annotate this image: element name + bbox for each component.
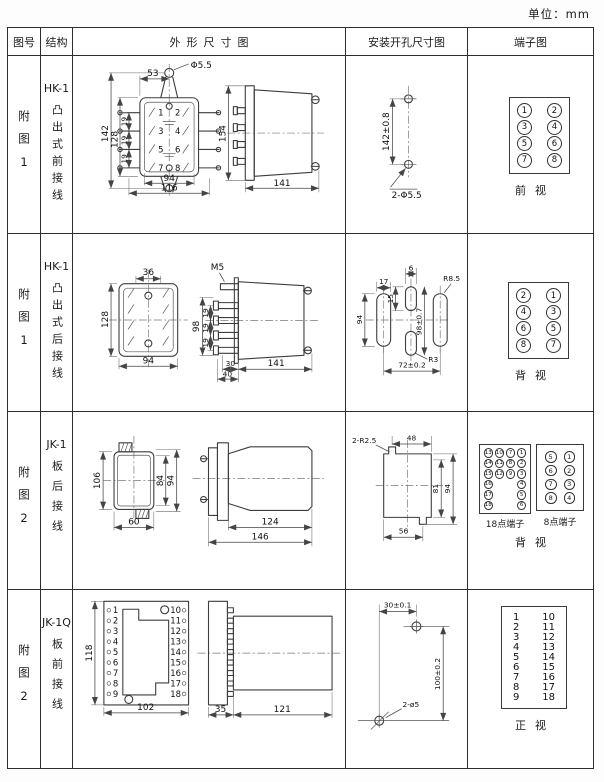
terminal-pin: 10	[495, 448, 505, 458]
terminal-pin: 11	[495, 459, 505, 469]
terminal-pin: 5	[545, 451, 557, 463]
dim-label: 94	[143, 356, 155, 366]
dim-label: R3	[428, 355, 438, 364]
terminal-right-column: 2468	[547, 103, 562, 168]
spec-table: 图号 结构 外形尺寸图 安装开孔尺寸图 端子图 附图1 HK-1 凸出式前接线	[7, 27, 594, 769]
dim-label: 19	[119, 117, 128, 127]
terminal-pin: 3	[546, 305, 561, 320]
terminal-pin: 7	[545, 479, 557, 491]
terminal-left-column: 2468	[516, 288, 531, 353]
terminal-count-label: 8点端子	[536, 515, 584, 528]
terminal-right-column: 1357	[546, 288, 561, 353]
terminal-pin: 17	[484, 490, 494, 500]
terminal-pin: 6	[547, 136, 562, 151]
dim-label: 19	[201, 338, 210, 348]
dim-label: 36	[143, 268, 155, 278]
terminal-pin: 8	[545, 492, 557, 504]
dim-label: 19	[119, 136, 128, 146]
structure-label: 板后接线	[49, 460, 65, 540]
fig-no-row1: 附图1	[8, 56, 41, 234]
pin-number: 18	[170, 689, 181, 699]
dim-label: 84	[156, 475, 166, 487]
model-label: HK-1	[44, 82, 69, 95]
pin-number: 5	[113, 647, 118, 657]
structure-label: 凸出式后接线	[49, 282, 65, 384]
dim-label: 141	[274, 179, 291, 189]
header-fig-no: 图号	[8, 28, 41, 56]
terminal-right-column: 101112131415161718	[542, 613, 555, 702]
terminal-pin: 2	[564, 465, 576, 477]
view-label: 正视	[468, 717, 593, 733]
terminal-cell-row3: 131415161718 101112 789 123456 5678 1234…	[468, 412, 593, 590]
contact-symbols	[149, 108, 189, 172]
terminal-column: 101112	[495, 448, 505, 510]
pin-number: 8	[175, 163, 180, 173]
terminal-pin: 5	[517, 490, 527, 500]
pin-number: 4	[175, 126, 180, 136]
dim-label: 94	[167, 475, 177, 487]
dim-label: 60	[128, 517, 140, 527]
dim-label: 40	[223, 370, 233, 379]
model-label: JK-1	[46, 438, 66, 451]
outline-cell-row1: 1 2 3 4 5 6 7 8 53 Φ5.5 142 128 19 19 19	[73, 56, 346, 234]
terminal-pin: 16	[484, 480, 494, 490]
outline-drawing-jk1q: 1 2 3 4 5 6 7 8 9 10 11 12 13 14 15 16 1…	[73, 590, 345, 768]
pin-number: 3	[158, 126, 163, 136]
dim-label: 94	[355, 315, 364, 325]
pin-number: 9	[113, 689, 118, 699]
structure-row3: JK-1 板后接线	[41, 412, 73, 590]
terminal-pin: 6	[517, 501, 527, 511]
dim-label: 19	[201, 323, 210, 333]
terminal-column: 131415161718	[484, 448, 494, 510]
dim-label: 17	[379, 277, 389, 286]
terminal-pin: 2	[517, 459, 527, 469]
terminal-number: 18	[542, 693, 555, 703]
pin-number: 8	[113, 678, 118, 688]
structure-row1: HK-1 凸出式前接线	[41, 56, 73, 234]
pin-number: 5	[158, 144, 163, 154]
view-label: 背视	[468, 367, 593, 383]
pin-number: 14	[170, 647, 181, 657]
terminal-pin: 18	[484, 501, 494, 511]
terminal-right-column: 1234	[564, 451, 576, 504]
header-mounting-dims: 安装开孔尺寸图	[346, 28, 468, 56]
terminal-pin: 4	[516, 305, 531, 320]
pin-number: 12	[170, 626, 181, 636]
terminal-box-8pt: 2468 1357	[508, 282, 569, 359]
terminal-column: 123456	[517, 448, 527, 510]
dim-label: 124	[262, 517, 279, 527]
pin-number: 7	[158, 163, 163, 173]
mounting-drawing-row4: 30±0.1 100±0.2 2-ø5	[346, 590, 467, 768]
pin-number: 6	[113, 658, 118, 668]
mounting-drawing-row1: 142±0.8 2-Φ5.5	[346, 56, 467, 233]
dim-label: 94	[164, 174, 176, 184]
pin-number: 15	[170, 658, 181, 668]
dim-label: 53	[147, 69, 158, 79]
dim-label: 106	[93, 472, 103, 489]
unit-label: 单位：mm	[528, 6, 590, 22]
terminal-pin: 8	[547, 153, 562, 168]
terminal-pin: 8	[506, 459, 516, 469]
dim-label: 19	[119, 154, 128, 164]
mounting-drawing-row2: 17 6 15 94 98±0.7 R8.5 R3 72±0.2	[346, 234, 467, 411]
terminal-left-column: 1357	[517, 103, 532, 168]
mounting-cell-row4: 30±0.1 100±0.2 2-ø5	[346, 590, 468, 768]
terminal-pin: 7	[517, 153, 532, 168]
dim-label: 72±0.2	[398, 361, 425, 370]
terminal-column: 789	[506, 448, 516, 510]
terminal-pin: 3	[517, 120, 532, 135]
fig-no-row4: 附图2	[8, 590, 41, 768]
structure-label: 板前接线	[49, 638, 65, 718]
dim-label: 102	[137, 703, 154, 713]
pin-number: 6	[175, 144, 180, 154]
outline-cell-row4: 1 2 3 4 5 6 7 8 9 10 11 12 13 14 15 16 1…	[73, 590, 346, 768]
terminal-left-column: 123456789	[513, 613, 519, 702]
terminal-pin: 7	[506, 448, 516, 458]
terminal-pin: 7	[546, 338, 561, 353]
mounting-cell-row1: 142±0.8 2-Φ5.5	[346, 56, 468, 234]
terminal-cell-row4: 123456789 101112131415161718 正视	[468, 590, 593, 768]
terminal-pin: 8	[516, 338, 531, 353]
pin-number: 10	[170, 605, 181, 615]
pin-number: 17	[170, 678, 181, 688]
pin-number: 4	[113, 637, 118, 647]
dim-label: 100±0.2	[433, 658, 442, 690]
structure-row2: HK-1 凸出式后接线	[41, 234, 73, 412]
terminal-pin: 1	[517, 448, 527, 458]
dim-label: 141	[268, 359, 285, 369]
mounting-cell-row2: 17 6 15 94 98±0.7 R8.5 R3 72±0.2	[346, 234, 468, 412]
model-label: HK-1	[44, 260, 69, 273]
terminal-pin: 3	[517, 469, 527, 479]
manual-page: { "page": { "unit": "单位：mm" }, "headers"…	[0, 0, 604, 782]
structure-row4: JK-1Q 板前接线	[41, 590, 73, 768]
dim-label: M5	[211, 263, 224, 273]
mounting-cell-row3: 2-R2.5 48 81 94 56	[346, 412, 468, 590]
terminal-pin: 4	[564, 492, 576, 504]
outline-cell-row3: 106 84 94 60 124 146	[73, 412, 346, 590]
header-structure: 结构	[41, 28, 73, 56]
pin-number: 13	[170, 637, 181, 647]
terminal-pin: 9	[506, 469, 516, 479]
terminal-box-18pt-plain: 123456789 101112131415161718	[501, 606, 567, 709]
terminal-pin: 6	[516, 321, 531, 336]
terminal-pin: 4	[517, 480, 527, 490]
terminal-pin: 14	[484, 459, 494, 469]
dim-label: 35	[215, 705, 226, 715]
terminal-pin: 1	[546, 288, 561, 303]
dim-label: 2-ø5	[403, 700, 420, 709]
terminal-cell-row2: 2468 1357 背视	[468, 234, 593, 412]
terminal-number: 9	[513, 693, 519, 703]
outline-drawing-jk1: 106 84 94 60 124 146	[73, 412, 345, 589]
dim-label: 2-R2.5	[352, 436, 377, 445]
fig-no-row3: 附图2	[8, 412, 41, 590]
dim-label: 121	[274, 705, 291, 715]
pin-number: 1	[158, 108, 163, 118]
terminal-pin: 2	[547, 103, 562, 118]
terminal-box-18pt: 131415161718 101112 789 123456	[479, 444, 531, 514]
dim-label: 30	[226, 359, 236, 368]
dim-label: 2-Φ5.5	[392, 191, 422, 201]
dim-label: 118	[85, 644, 95, 661]
dim-label: 15	[386, 294, 395, 304]
dim-label: 146	[252, 532, 269, 542]
pin-number: 2	[113, 616, 118, 626]
terminal-pin: 3	[564, 479, 576, 491]
outline-drawing-hk1-rear: 36 128 94 M5 98	[73, 234, 345, 411]
dim-label: 19	[201, 308, 210, 318]
view-label: 背视	[468, 534, 593, 550]
pin-number: 11	[170, 616, 181, 626]
side-pins	[227, 608, 233, 697]
outline-cell-row2: 36 128 94 M5 98	[73, 234, 346, 412]
dim-label: Φ5.5	[191, 61, 212, 71]
pin-number: 7	[113, 668, 118, 678]
terminal-pin: 5	[517, 136, 532, 151]
dim-label: 6	[409, 263, 414, 272]
terminal-box-8pt: 5678 1234	[536, 444, 584, 511]
dim-label: 98±0.7	[414, 307, 423, 335]
header-terminal-diagram: 端子图	[468, 28, 593, 56]
terminal-pin: 13	[484, 448, 494, 458]
terminal-left-column: 5678	[545, 451, 557, 504]
mounting-drawing-row3: 2-R2.5 48 81 94 56	[346, 412, 467, 589]
pin-number: 2	[175, 108, 180, 118]
dim-label: 142±0.8	[382, 112, 392, 151]
dim-label: R8.5	[443, 274, 460, 283]
dim-label: 116	[161, 184, 178, 194]
model-label: JK-1Q	[42, 616, 71, 629]
header-outline-dims: 外形尺寸图	[73, 28, 346, 56]
terminal-pin: 6	[545, 465, 557, 477]
dim-label: 30±0.1	[384, 601, 412, 610]
terminal-pin: 1	[517, 103, 532, 118]
pin-number: 3	[113, 626, 118, 636]
fig-no-row2: 附图1	[8, 234, 41, 412]
dim-label: 48	[407, 433, 417, 442]
terminal-pin: 15	[484, 469, 494, 479]
terminal-count-label: 18点端子	[474, 517, 536, 530]
terminal-pin: 2	[516, 288, 531, 303]
terminal-box-8pt: 1357 2468	[509, 97, 570, 174]
terminal-pin: 4	[547, 120, 562, 135]
terminal-pin: 12	[495, 469, 505, 479]
outline-drawing-hk1-front: 1 2 3 4 5 6 7 8 53 Φ5.5 142 128 19 19 19	[73, 56, 345, 233]
structure-label: 凸出式前接线	[49, 104, 65, 206]
dim-label: 154	[218, 125, 228, 142]
dim-label: 81	[431, 484, 440, 494]
view-label: 前视	[468, 182, 593, 198]
pin-number: 16	[170, 668, 181, 678]
dim-label: 128	[101, 311, 111, 328]
terminal-cell-row1: 1357 2468 前视	[468, 56, 593, 234]
side-pins	[233, 107, 245, 166]
dim-label: 94	[443, 484, 452, 494]
terminal-pin: 1	[564, 451, 576, 463]
pin-number: 1	[113, 605, 118, 615]
dim-label: 56	[399, 527, 409, 536]
terminal-pin: 5	[546, 321, 561, 336]
